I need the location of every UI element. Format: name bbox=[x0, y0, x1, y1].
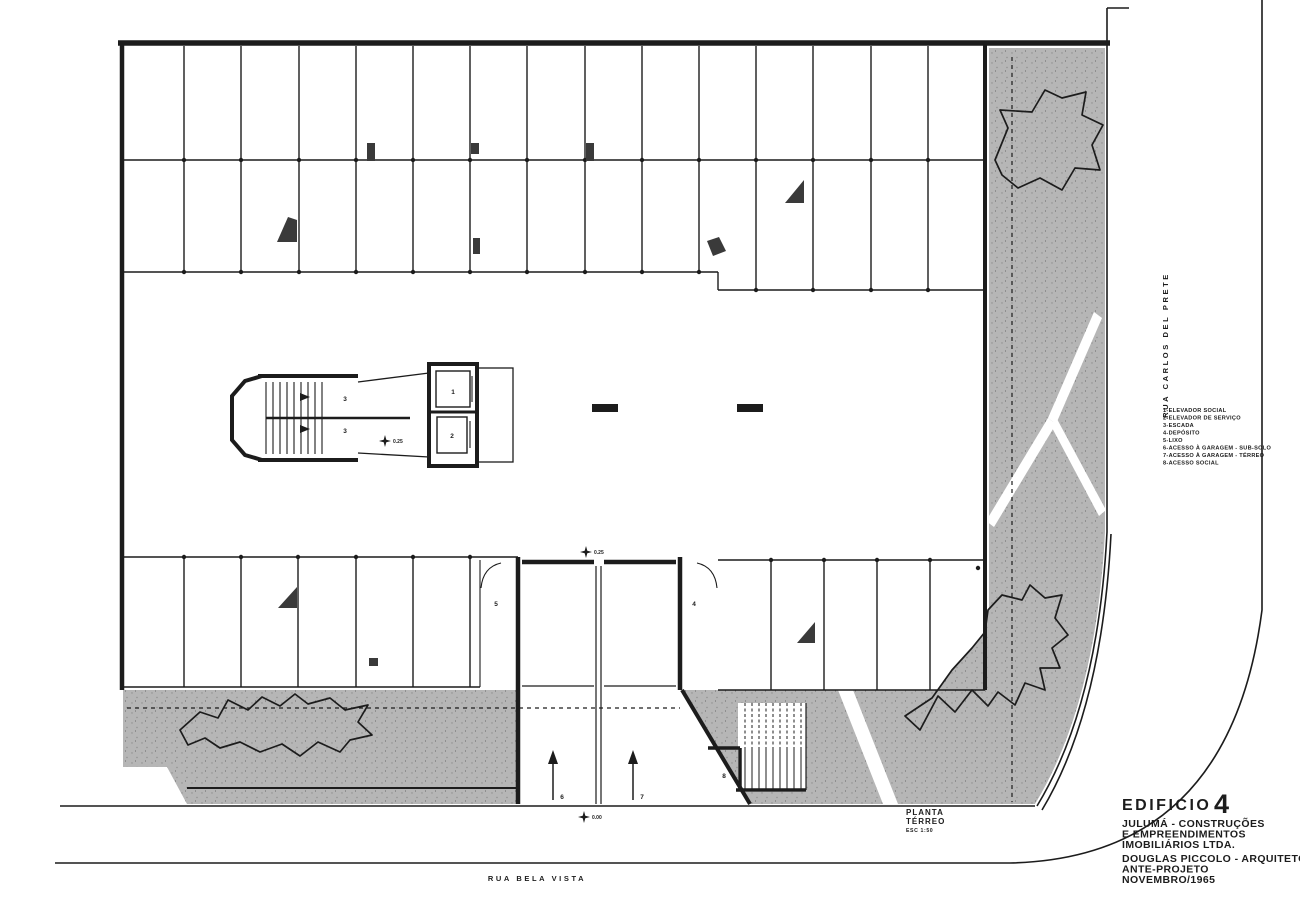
stall-dividers-row1 bbox=[184, 46, 928, 160]
legend-item-3: 3-ESCADA bbox=[1163, 423, 1194, 429]
date-line: NOVEMBRO/1965 bbox=[1122, 874, 1215, 886]
level-value-street: 0.00 bbox=[592, 815, 602, 821]
building-number: 4 bbox=[1214, 789, 1229, 819]
legend-item-7: 7-ACESSO À GARAGEM - TÉRREO bbox=[1163, 451, 1265, 459]
mark-stair-lower: 3 bbox=[343, 428, 347, 435]
legend-item-6: 6-ACESSO À GARAGEM - SUB-SOLO bbox=[1163, 445, 1271, 452]
mark-small-room-left: 5 bbox=[494, 601, 498, 608]
shear-walls-south bbox=[278, 587, 815, 666]
mark-elevator-service: 2 bbox=[450, 433, 454, 440]
legend-item-8: 8-ACESSO SOCIAL bbox=[1163, 461, 1219, 467]
plan-caption-line1: PLANTA bbox=[906, 808, 944, 817]
drawing-sheet: 0.25 0.25 0.00 3 3 1 2 5 4 6 7 8 1-ELEVA… bbox=[0, 0, 1300, 900]
level-marker-street: 0.00 bbox=[578, 811, 602, 823]
street-label-bottom: RUA BELA VISTA bbox=[488, 874, 586, 883]
stair-west-bulge bbox=[232, 376, 262, 460]
ramp-corridor bbox=[518, 557, 680, 804]
parking-grid-south bbox=[124, 555, 985, 690]
column-mid-left bbox=[592, 404, 618, 412]
mark-social-access: 8 bbox=[722, 773, 726, 780]
client-line3: IMOBILIÁRIOS LTDA. bbox=[1122, 838, 1235, 851]
level-value-ramp: 0.25 bbox=[594, 550, 604, 556]
plan-caption-line2: TÉRREO bbox=[906, 817, 945, 826]
legend-item-2: 2-ELEVADOR DE SERVIÇO bbox=[1163, 416, 1241, 422]
mark-small-room-right: 4 bbox=[692, 601, 696, 608]
parking-grid-north bbox=[124, 46, 985, 292]
mark-ramp-basement: 6 bbox=[560, 794, 564, 801]
level-value-core: 0.25 bbox=[393, 439, 403, 445]
ramp-lane-divider bbox=[596, 566, 601, 804]
mark-elevator-social: 1 bbox=[451, 389, 455, 396]
ramp-arrow-basement bbox=[548, 750, 558, 800]
plan-caption: PLANTA TÉRREO ESC 1:50 bbox=[906, 808, 945, 834]
street-label-right: RUA CARLOS DEL PRETE bbox=[1161, 272, 1170, 418]
mark-ramp-ground: 7 bbox=[640, 794, 644, 801]
mark-stair-upper: 3 bbox=[343, 396, 347, 403]
column-east-wall bbox=[976, 566, 980, 570]
legend-item-1: 1-ELEVADOR SOCIAL bbox=[1163, 408, 1227, 414]
title-block: EDIFICIO 4 JULUMÁ - CONSTRUÇÕES E EMPREE… bbox=[1122, 789, 1300, 886]
column-mid-right bbox=[737, 404, 763, 412]
level-marker-core: 0.25 bbox=[379, 435, 403, 447]
site-plan-drawing: 0.25 0.25 0.00 3 3 1 2 5 4 6 7 8 1-ELEVA… bbox=[0, 0, 1300, 900]
building-shell bbox=[118, 41, 1110, 690]
ramp-arrow-ground bbox=[628, 750, 638, 800]
plan-caption-scale: ESC 1:50 bbox=[906, 828, 933, 834]
open-floor bbox=[592, 404, 980, 570]
elevator-shafts bbox=[429, 364, 477, 466]
legend-item-4: 4-DEPÓSITO bbox=[1163, 429, 1200, 437]
building-label: EDIFICIO bbox=[1122, 797, 1211, 814]
legend-item-5: 5-LIXO bbox=[1163, 438, 1183, 444]
level-marker-ramp: 0.25 bbox=[580, 546, 604, 558]
legend: 1-ELEVADOR SOCIAL 2-ELEVADOR DE SERVIÇO … bbox=[1163, 408, 1271, 467]
stall-dividers-south bbox=[184, 557, 930, 690]
